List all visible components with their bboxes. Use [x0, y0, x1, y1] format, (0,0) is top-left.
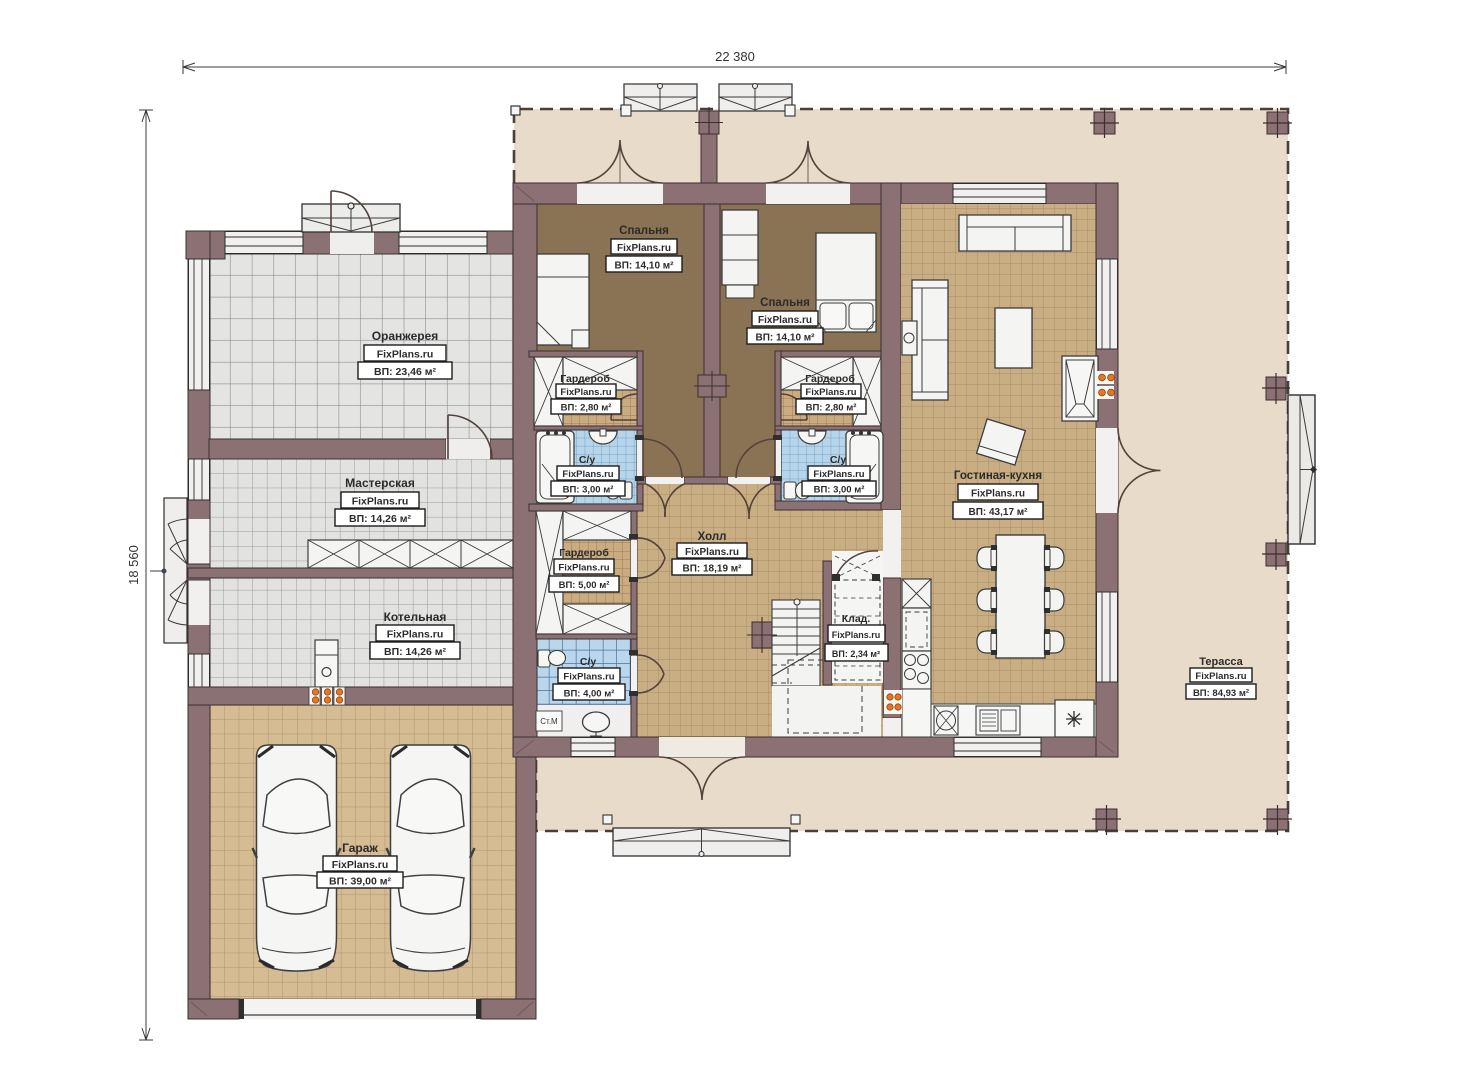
- svg-text:Терасса: Терасса: [1199, 656, 1243, 668]
- svg-text:С/у: С/у: [830, 454, 847, 466]
- svg-text:Гардероб: Гардероб: [805, 373, 855, 385]
- svg-text:FixPlans.ru: FixPlans.ru: [617, 243, 671, 254]
- svg-text:ВП: 2,34 м²: ВП: 2,34 м²: [832, 649, 880, 659]
- svg-text:ВП: 14,26 м²: ВП: 14,26 м²: [349, 513, 412, 525]
- svg-text:FixPlans.ru: FixPlans.ru: [558, 563, 609, 574]
- svg-text:Гардероб: Гардероб: [559, 547, 609, 559]
- svg-text:FixPlans.ru: FixPlans.ru: [377, 349, 434, 361]
- svg-text:FixPlans.ru: FixPlans.ru: [832, 630, 881, 640]
- svg-text:Котельная: Котельная: [384, 610, 447, 624]
- svg-text:ВП: 18,19 м²: ВП: 18,19 м²: [682, 564, 742, 575]
- svg-text:FixPlans.ru: FixPlans.ru: [758, 315, 812, 326]
- svg-text:ВП: 39,00 м²: ВП: 39,00 м²: [329, 876, 392, 888]
- svg-text:FixPlans.ru: FixPlans.ru: [813, 469, 864, 480]
- svg-text:ВП: 14,10 м²: ВП: 14,10 м²: [614, 261, 674, 272]
- svg-text:FixPlans.ru: FixPlans.ru: [805, 387, 856, 398]
- svg-text:ВП: 5,00 м²: ВП: 5,00 м²: [559, 580, 610, 591]
- svg-text:FixPlans.ru: FixPlans.ru: [332, 859, 389, 871]
- svg-text:Спальня: Спальня: [760, 297, 810, 309]
- svg-text:ВП: 2,80 м²: ВП: 2,80 м²: [806, 403, 857, 414]
- svg-text:ВП: 4,00 м²: ВП: 4,00 м²: [564, 689, 615, 700]
- svg-text:Ст.М: Ст.М: [540, 717, 558, 726]
- svg-text:22 380: 22 380: [715, 49, 755, 64]
- svg-text:Гардероб: Гардероб: [560, 373, 610, 385]
- svg-text:ВП: 43,17 м²: ВП: 43,17 м²: [968, 507, 1028, 518]
- svg-text:Гараж: Гараж: [342, 841, 378, 855]
- svg-text:FixPlans.ru: FixPlans.ru: [387, 629, 444, 641]
- svg-text:ВП: 3,00 м²: ВП: 3,00 м²: [563, 485, 614, 496]
- svg-text:FixPlans.ru: FixPlans.ru: [352, 496, 409, 508]
- svg-text:FixPlans.ru: FixPlans.ru: [1195, 671, 1246, 682]
- svg-text:Холл: Холл: [698, 531, 727, 543]
- svg-text:С/у: С/у: [580, 656, 597, 668]
- svg-text:ВП: 84,93 м²: ВП: 84,93 м²: [1193, 688, 1249, 699]
- svg-text:FixPlans.ru: FixPlans.ru: [562, 469, 613, 480]
- svg-text:ВП: 23,46 м²: ВП: 23,46 м²: [374, 366, 437, 378]
- svg-text:С/у: С/у: [579, 454, 596, 466]
- svg-text:ВП: 2,80 м²: ВП: 2,80 м²: [561, 403, 612, 414]
- svg-text:Гостиная-кухня: Гостиная-кухня: [954, 470, 1042, 482]
- svg-text:FixPlans.ru: FixPlans.ru: [685, 547, 739, 558]
- svg-text:FixPlans.ru: FixPlans.ru: [560, 387, 611, 398]
- svg-text:ВП: 14,10 м²: ВП: 14,10 м²: [755, 333, 815, 344]
- svg-text:ВП: 14,26 м²: ВП: 14,26 м²: [384, 646, 447, 658]
- svg-text:Спальня: Спальня: [619, 225, 669, 237]
- svg-text:Мастерская: Мастерская: [345, 476, 415, 490]
- svg-text:FixPlans.ru: FixPlans.ru: [971, 489, 1025, 500]
- svg-text:FixPlans.ru: FixPlans.ru: [563, 672, 614, 683]
- svg-text:ВП: 3,00 м²: ВП: 3,00 м²: [814, 485, 865, 496]
- svg-text:Оранжерея: Оранжерея: [372, 329, 439, 343]
- svg-text:18 560: 18 560: [126, 545, 141, 585]
- svg-text:Клад.: Клад.: [842, 613, 871, 625]
